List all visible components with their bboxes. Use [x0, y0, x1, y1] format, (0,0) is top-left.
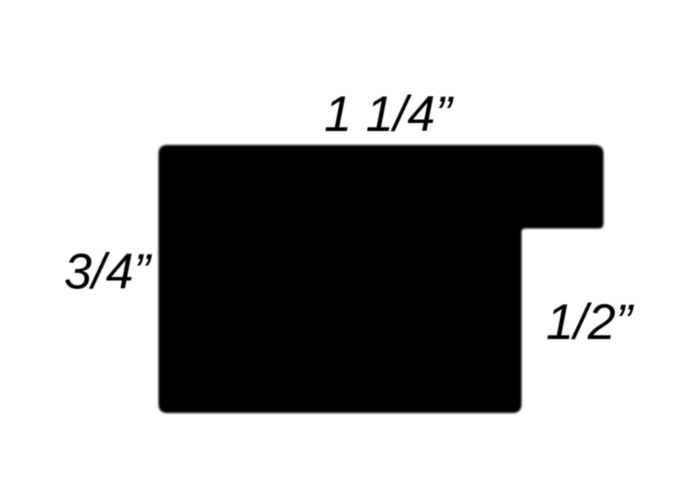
svg-text:1 1/4”: 1 1/4” — [324, 86, 454, 142]
svg-text:1/2”: 1/2” — [546, 294, 635, 350]
svg-text:3/4”: 3/4” — [64, 244, 153, 300]
